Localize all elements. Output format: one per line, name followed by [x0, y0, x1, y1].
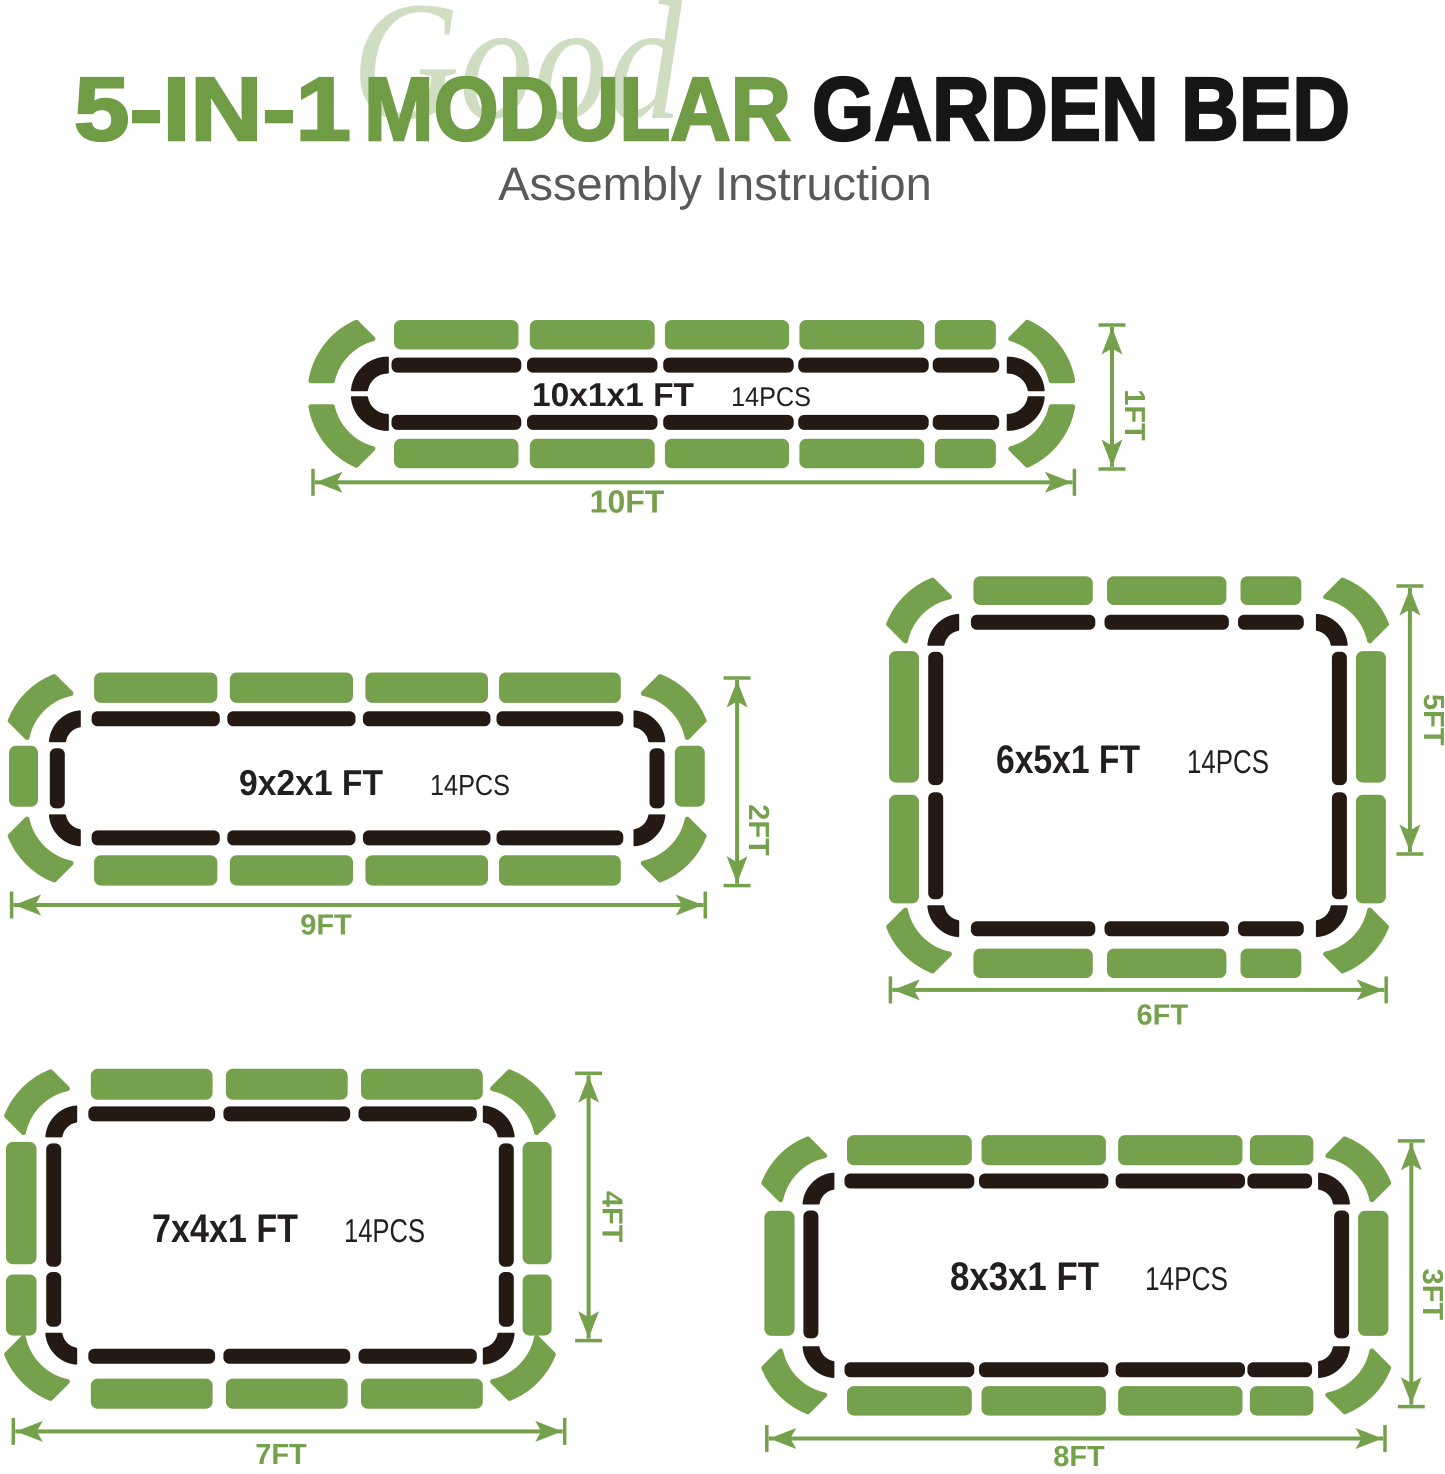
svg-text:8FT: 8FT: [1053, 1441, 1105, 1469]
svg-text:6FT: 6FT: [1137, 1000, 1189, 1032]
svg-text:8x3x1 FT: 8x3x1 FT: [950, 1255, 1099, 1299]
svg-text:14PCS: 14PCS: [430, 770, 510, 802]
svg-text:3FT: 3FT: [1416, 1269, 1445, 1321]
svg-text:9FT: 9FT: [300, 910, 352, 942]
svg-text:Assembly Instruction: Assembly Instruction: [498, 157, 932, 210]
svg-text:5-IN-1: 5-IN-1: [74, 60, 351, 160]
svg-text:2FT: 2FT: [742, 804, 774, 856]
svg-text:14PCS: 14PCS: [1145, 1260, 1228, 1297]
svg-text:GARDEN BED: GARDEN BED: [812, 60, 1350, 160]
svg-text:14PCS: 14PCS: [1187, 743, 1269, 780]
svg-text:MODULAR: MODULAR: [364, 60, 791, 160]
svg-text:7x4x1 FT: 7x4x1 FT: [152, 1207, 298, 1251]
svg-text:9x2x1 FT: 9x2x1 FT: [239, 762, 383, 803]
svg-text:10x1x1 FT: 10x1x1 FT: [532, 376, 694, 413]
svg-text:7FT: 7FT: [255, 1439, 307, 1469]
svg-text:10FT: 10FT: [590, 484, 665, 520]
svg-text:1FT: 1FT: [1118, 389, 1150, 441]
svg-text:14PCS: 14PCS: [731, 382, 811, 412]
svg-text:4FT: 4FT: [596, 1191, 628, 1243]
svg-text:5FT: 5FT: [1417, 694, 1445, 746]
svg-text:6x5x1 FT: 6x5x1 FT: [996, 738, 1140, 782]
svg-text:14PCS: 14PCS: [344, 1212, 425, 1249]
